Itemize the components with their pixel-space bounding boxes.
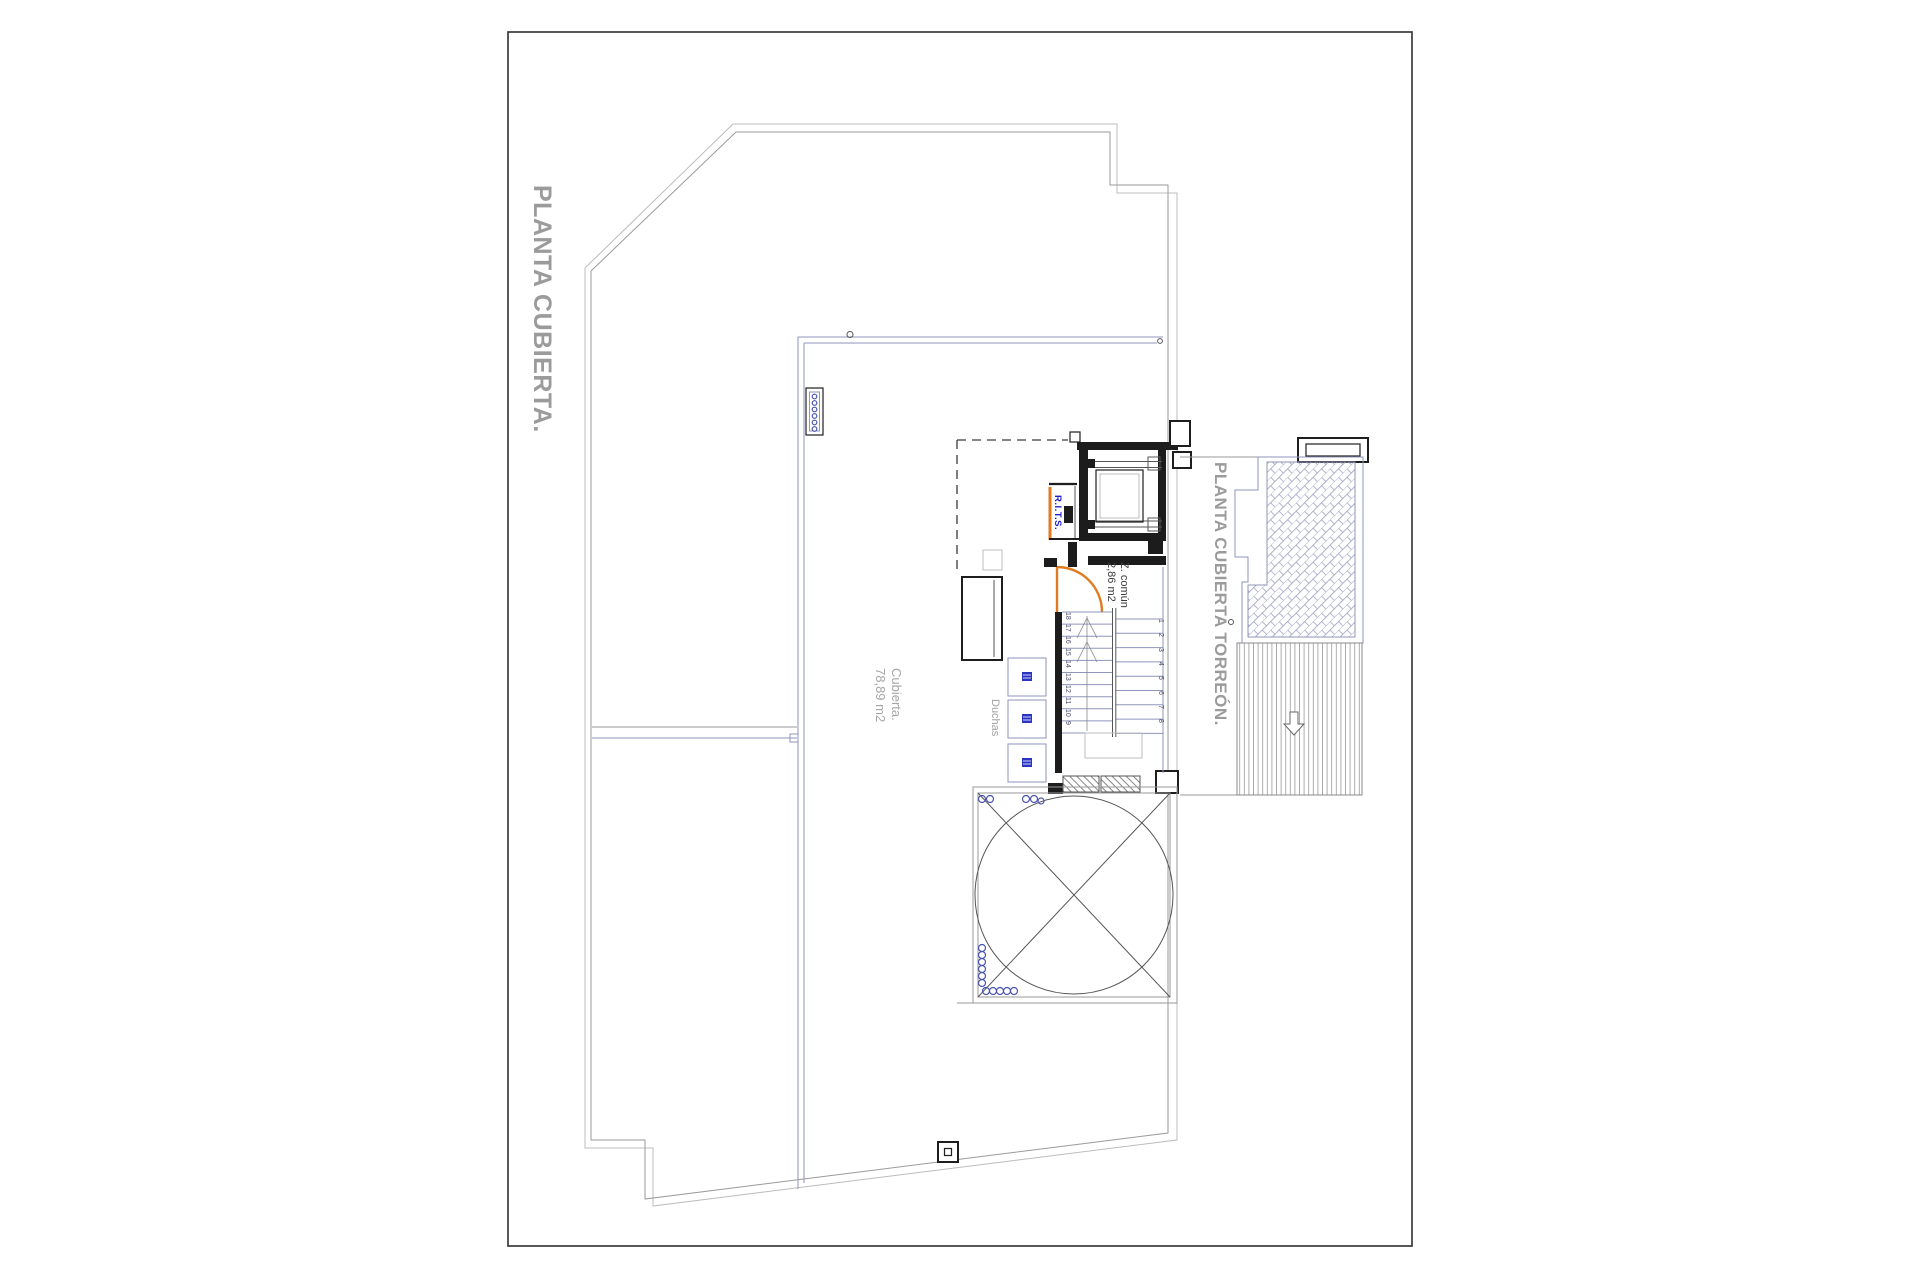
stair-number: 3: [1156, 648, 1164, 652]
shower-head-icon: [1022, 672, 1032, 681]
stair-number: 14: [1063, 660, 1071, 668]
elevator: [1088, 457, 1162, 531]
stair-number: 16: [1063, 636, 1071, 644]
cubierta-area-value: 78,89 m2: [873, 668, 888, 722]
rits-label: R.I.T.S.: [1052, 495, 1063, 530]
stair-number: 12: [1063, 685, 1071, 693]
duchas-label: Duchas: [989, 699, 1001, 736]
stair-number: 2: [1156, 633, 1164, 637]
stair-number: 13: [1063, 673, 1071, 681]
terrace-division-lines: [592, 727, 798, 742]
torreon-plan-title: PLANTA CUBIERTA TORREÓN.: [1210, 462, 1230, 726]
terrace-outline: [585, 124, 1177, 1206]
cubierta-name: Cubierta.: [889, 668, 904, 721]
door-swing: [1057, 567, 1102, 612]
stair-number: 9: [1063, 721, 1071, 725]
shower-head-icon: [1022, 758, 1032, 767]
zona-comun-area-value: 2,86 m2: [1105, 562, 1117, 602]
stair-number: 8: [1156, 719, 1164, 723]
torreon-roof: [1180, 438, 1368, 795]
cubierta-area-label: Cubierta. 78,89 m2: [872, 668, 904, 722]
stair-number: 1: [1156, 619, 1164, 623]
roof-plate-outline: [798, 332, 1163, 1190]
zona-comun-name: Z. común: [1118, 562, 1130, 608]
stair-number: 15: [1063, 648, 1071, 656]
shower-head-icon: [1022, 714, 1032, 723]
stair-number: 10: [1063, 709, 1071, 717]
plan-title: PLANTA CUBIERTA.: [527, 185, 556, 433]
bottom-marker: [938, 1142, 958, 1162]
stair-numbers-left: 1817161514131211109: [1063, 612, 1072, 742]
stair-numbers-right: 12345678: [1156, 619, 1165, 739]
stair-number: 6: [1156, 691, 1164, 695]
stair-number: 4: [1156, 662, 1164, 666]
stair-number: 18: [1063, 612, 1071, 620]
stair-number: 7: [1156, 705, 1164, 709]
stair-number: 17: [1063, 624, 1071, 632]
showers: [1008, 658, 1046, 782]
jacuzzi: [957, 787, 1177, 1003]
sheet-border: [508, 32, 1412, 1246]
stair-number: 11: [1063, 697, 1071, 704]
stair-number: 5: [1156, 676, 1164, 680]
floorplan-page: PLANTA CUBIERTA. PLANTA CUBIERTA TORREÓN…: [0, 0, 1920, 1280]
planter: [962, 550, 1002, 660]
roof-vent: [806, 388, 823, 435]
zona-comun-label: Z. común 2,86 m2: [1104, 562, 1130, 608]
floorplan-drawing: [0, 0, 1920, 1280]
